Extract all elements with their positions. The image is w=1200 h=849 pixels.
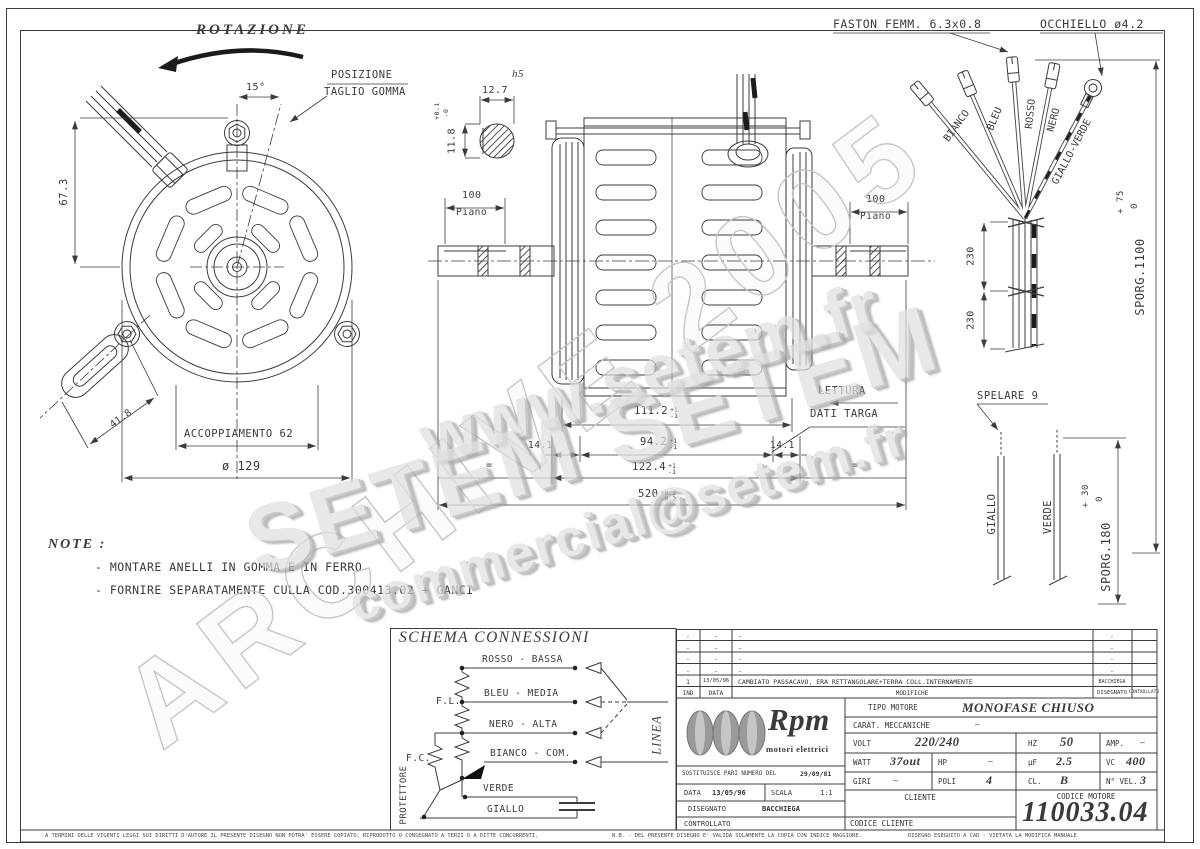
sporg180-tol-plus: + 30 [1081, 484, 1091, 508]
rev-header-disegnato: DISEGNATO [1097, 690, 1127, 696]
hp-label: HP [938, 758, 947, 767]
rev-row-text: - [738, 667, 742, 675]
rev-header-ind: IND [683, 690, 694, 697]
hz-value: 50 [1060, 735, 1074, 750]
verde-wire-label: VERDE [1042, 500, 1054, 534]
codice-motore-value: 110033.04 [1022, 797, 1148, 829]
rev-row-ind: - [686, 655, 690, 663]
giri-label: GIRI [853, 777, 871, 786]
diameter-dim: ø 129 [222, 459, 261, 473]
volt-label: VOLT [853, 739, 871, 748]
volt-value: 220/240 [915, 735, 959, 750]
rev-header-data: DATA [709, 690, 723, 697]
footer-legal-left: A TERMINI DELLE VIGENTI LEGGI SUI DIRITT… [45, 833, 538, 839]
rev-row-drawn: - [1110, 632, 1114, 640]
sporg1100-tol-plus: + 75 [1116, 190, 1126, 214]
faston-label: FASTON FEMM. 6.3x0.8 [833, 17, 981, 31]
spelare-label: SPELARE 9 [977, 390, 1038, 402]
dim-67-3: 67.3 [58, 178, 70, 205]
occhiello-label: OCCHIELLO ø4.2 [1040, 17, 1144, 31]
note-line-2: - FORNIRE SEPARATAMENTE CULLA COD.300413… [95, 583, 474, 597]
uf-label: µF [1028, 758, 1037, 767]
rev-header-controllato: CONTROLLATO [1129, 690, 1159, 695]
dim-122-4: 122.4+1-1 [632, 461, 676, 475]
rev-row-drawn: - [1110, 655, 1114, 663]
rev-row-text: - [738, 655, 742, 663]
ring-terminal [1077, 77, 1105, 110]
piano-right-dim: 100 [866, 194, 886, 205]
piano-left-label: Piano [456, 207, 487, 218]
sporg1100-label: SPORG.1100 [1133, 238, 1147, 315]
footer-legal-nb: N.B. - DEL PRESENTE DISEGNO E' VALIDA SO… [612, 833, 862, 839]
codice-cliente-label: CODICE CLIENTE [850, 819, 913, 828]
lettura-label-2: DATI TARGA [810, 408, 878, 420]
hp-value: — [988, 757, 993, 766]
piano-left-dim: 100 [462, 190, 482, 201]
schema-protettore-label: PROTETTORE [399, 765, 409, 824]
watt-label: WATT [853, 758, 871, 767]
vc-label: VC [1106, 758, 1115, 767]
rev-row-ind: - [686, 632, 690, 640]
uf-value: 2.5 [1056, 754, 1073, 769]
lettura-label-1: LETTURA [818, 385, 866, 397]
sostituisce-label: SOSTITUISCE PARI NUMERO DEL [682, 771, 776, 777]
posizione-label-2: TAGLIO GOMMA [324, 86, 406, 98]
schema-title: SCHEMA CONNESSIONI [399, 629, 590, 647]
rev-row-text: - [738, 632, 742, 640]
cable-bundle [1005, 218, 1044, 352]
giri-value: — [893, 776, 898, 785]
dim-520: 520+0.2-0.2 [638, 488, 676, 502]
watt-value: 37out [890, 754, 921, 769]
controllato-label: CONTROLLATO [684, 820, 730, 828]
equal-mark-left: = [486, 460, 493, 471]
schema-fc-label: F.C. [406, 753, 431, 764]
rpm-logo-graphic [687, 711, 765, 755]
sporg180-tol-minus: 0 [1095, 496, 1105, 502]
shaft-section-detail [465, 96, 514, 158]
dim-230-upper: 230 [966, 246, 977, 266]
rev-row-drawn: - [1110, 644, 1114, 652]
cl-label: CL. [1028, 777, 1042, 786]
dim-230-lower: 230 [966, 310, 977, 330]
carat-label: CARAT. MECCANICHE [853, 721, 930, 730]
schema-fl-label: F.L. [436, 696, 461, 707]
hz-label: HZ [1028, 739, 1037, 748]
dim-94-2: 94.2+1-1 [640, 436, 677, 450]
detail-tol-minus: -0 [442, 109, 450, 118]
rev-row-text: CAMBIATO PASSACAVO, ERA RETTANGOLARE+TER… [738, 678, 973, 686]
cl-value: B [1060, 773, 1069, 788]
rev-row-data: - [714, 667, 718, 675]
equal-mark-right: = [852, 460, 859, 471]
rev-row-data: - [714, 644, 718, 652]
rev-row-drawn: - [1110, 667, 1114, 675]
amp-value: — [1140, 738, 1145, 747]
note-title: NOTE : [48, 537, 106, 553]
nvel-value: 3 [1140, 773, 1147, 788]
nvel-label: N° VEL. [1106, 777, 1138, 786]
schema-nero-alta: NERO - ALTA [489, 719, 557, 730]
detail-height-dim: 11.8 [447, 128, 458, 154]
disegnato-label: DISEGNATO [688, 805, 726, 813]
cliente-label: CLIENTE [904, 793, 936, 802]
posizione-label-1: POSIZIONE [331, 69, 392, 81]
dim-14-1-left: 14.1 [528, 440, 553, 451]
amp-label: AMP. [1106, 739, 1124, 748]
carat-value: — [975, 720, 980, 729]
rev-row-ind: - [686, 644, 690, 652]
rotation-arrow [158, 50, 303, 72]
rev-row-text: - [738, 644, 742, 652]
disegnato-value: BACCHIEGA [762, 805, 800, 813]
poli-label: POLI [938, 777, 956, 786]
schema-bianco-com: BIANCO - COM. [490, 748, 571, 759]
rev-row-data: 13/05/96 [703, 678, 730, 684]
rev-row-data: - [714, 655, 718, 663]
schema-giallo: GIALLO [487, 804, 524, 815]
fit-class-label: h5 [512, 68, 524, 80]
rev-row-drawn: BACCHIEGA [1098, 679, 1125, 685]
tipo-motore-label: TIPO MOTORE [868, 703, 918, 712]
dim-111-2: 111.2+1-1 [634, 405, 678, 419]
bolt-lower-right [330, 317, 364, 351]
rev-row-ind: 1 [686, 678, 690, 686]
giallo-wire-label: GIALLO [986, 494, 998, 535]
drawing-linework [0, 0, 1200, 849]
data-label: DATA [684, 789, 701, 797]
schema-verde: VERDE [483, 783, 514, 794]
rotation-label: ROTAZIONE [196, 22, 309, 39]
coupling-dim: ACCOPPIAMENTO 62 [184, 428, 293, 440]
detail-tol-plus: +0.1 [433, 102, 441, 120]
bolt-lower-left [110, 317, 144, 351]
scala-label: SCALA [771, 789, 792, 797]
brand-logo-text: Rpm [768, 702, 830, 738]
schema-rosso-bassa: ROSSO - BASSA [482, 654, 563, 665]
rev-row-ind: - [686, 667, 690, 675]
poli-value: 4 [986, 773, 993, 788]
sostituisce-value: 29/09/81 [800, 770, 831, 778]
rev-row-data: - [714, 632, 718, 640]
rev-header-modifiche: MODIFICHE [896, 690, 929, 697]
detail-width-dim: 12.7 [482, 85, 508, 96]
schema-linea-label: LINEA [650, 715, 665, 755]
data-value: 13/05/96 [712, 789, 746, 797]
technical-drawing-page: ROTAZIONE 15° POSIZIONE TAGLIO GOMMA 67.… [0, 0, 1200, 849]
tipo-motore-value: MONOFASE CHIUSO [962, 700, 1094, 716]
dim-14-1-right: 14.1 [770, 440, 795, 451]
footer-legal-cad: DISEGNO ESEGUITO A CAD - VIETATA LA MODI… [908, 833, 1077, 839]
front-cable [86, 86, 188, 188]
front-view [40, 50, 408, 482]
vc-value: 400 [1126, 754, 1146, 769]
schema-bleu-media: BLEU - MEDIA [484, 688, 559, 699]
note-line-1: - MONTARE ANELLI IN GOMMA E IN FERRO [95, 560, 362, 574]
scala-value: 1:1 [820, 789, 833, 797]
angle-dim: 15° [246, 82, 266, 93]
sporg180-label: SPORG.180 [1099, 522, 1113, 592]
brand-sub-text: motori elettrici [766, 744, 829, 754]
piano-right-label: Piano [860, 211, 891, 222]
sporg1100-tol-minus: 0 [1130, 203, 1140, 209]
